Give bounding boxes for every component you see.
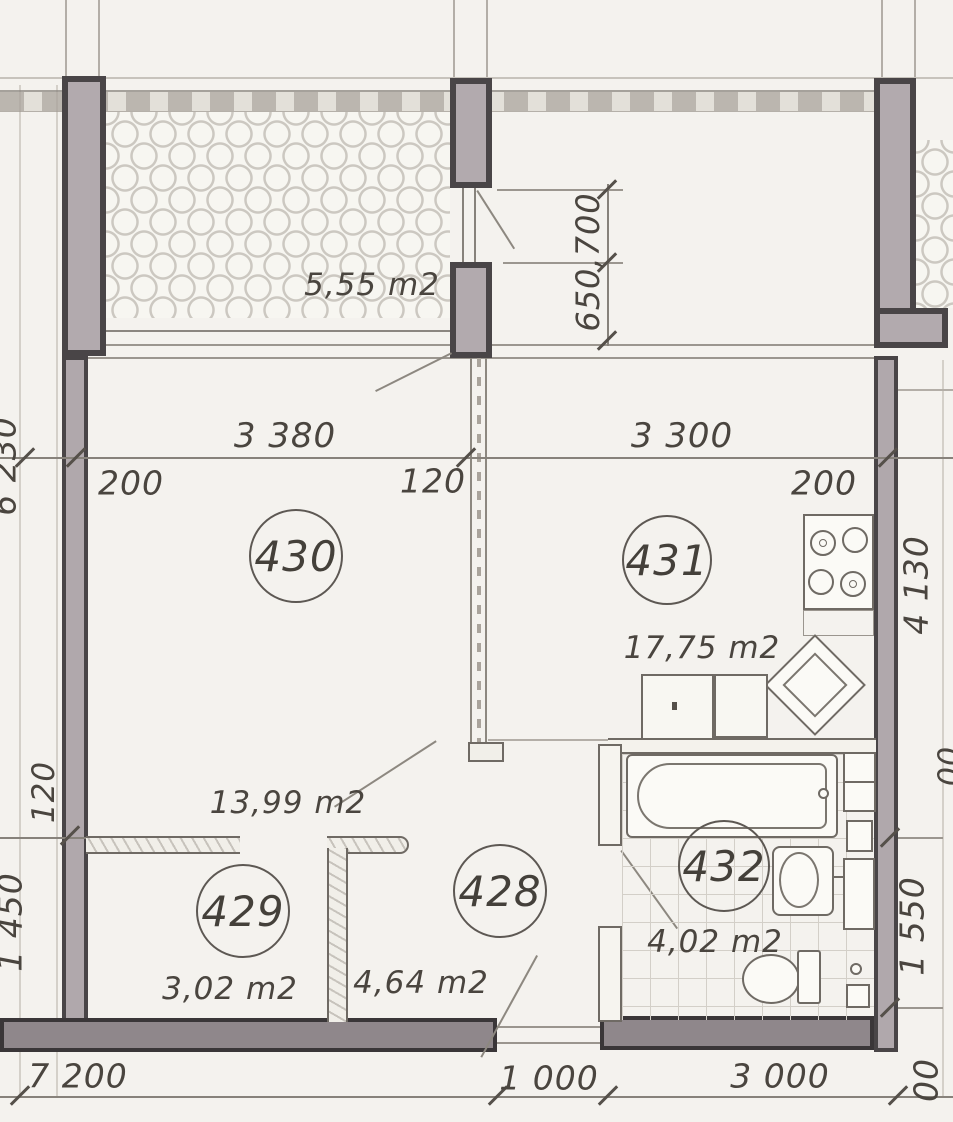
balcony-edge-line	[106, 330, 450, 332]
dim-bottom-left-total: 7 200	[28, 1057, 127, 1096]
dim-room-right-width: 3 300	[631, 416, 733, 456]
door-threshold-line	[497, 1042, 600, 1044]
dimension-ext	[898, 837, 943, 839]
door-threshold-line	[497, 1026, 600, 1028]
bathroom-top-wall	[608, 738, 876, 754]
dimension-line-window	[607, 184, 609, 346]
dim-left-lower: 1 450	[0, 872, 30, 971]
room-number: 431	[625, 536, 708, 585]
bath-fixture-valve-icon	[850, 963, 862, 975]
balcony-area-label: 5,55 m2	[304, 267, 440, 303]
dimension-ext	[898, 1007, 943, 1009]
grid-line	[65, 0, 67, 80]
stove-burner-dot	[819, 539, 827, 547]
room-number: 428	[458, 867, 541, 916]
dim-right-lower: 1 550	[893, 876, 932, 975]
pier-left	[62, 76, 106, 356]
dim-left-upper-partial: 6 230	[0, 416, 24, 515]
partition-430-429	[86, 836, 240, 854]
dim-wall-left: 200	[98, 464, 164, 503]
dim-bottom-door: 1 000	[499, 1059, 598, 1098]
bathroom-left-wall-lower	[598, 926, 622, 1022]
pier-right-foot	[874, 308, 948, 348]
stove-burner-icon	[842, 527, 868, 553]
bath-fixture	[843, 858, 875, 930]
room-number: 432	[682, 842, 765, 891]
dim-bottom-edge-partial: 00	[907, 1058, 946, 1102]
pier-mid-lower	[450, 262, 492, 358]
bath-fixture	[846, 984, 870, 1008]
dim-partition-mid: 120	[400, 462, 466, 501]
room-number: 429	[201, 887, 284, 936]
sink-bowl-icon	[779, 852, 819, 908]
stove-burner-dot	[849, 580, 857, 588]
room-432-area-label: 4,02 m2	[647, 924, 783, 960]
room-tag-432: 432	[678, 820, 770, 912]
bath-fixture-divider	[845, 781, 874, 783]
grid-line	[98, 0, 100, 80]
stove-icon	[803, 514, 874, 610]
extension-line	[942, 360, 944, 1098]
room-number: 430	[254, 532, 337, 581]
stove-burner-icon	[808, 569, 834, 595]
wardrobe-handle-dot	[672, 702, 677, 710]
grid-line	[914, 0, 916, 80]
partition-429-428	[327, 848, 348, 1022]
dim-left-partition: 120	[26, 761, 62, 823]
bathroom-left-wall-upper	[598, 744, 622, 846]
dimension-ext	[898, 389, 953, 391]
dim-bottom-bath: 3 000	[730, 1057, 829, 1096]
window-line	[462, 188, 464, 262]
dimension-line-bottom	[0, 1096, 953, 1098]
grid-line	[486, 0, 488, 80]
room-431-area-label: 17,75 m2	[624, 630, 781, 666]
toilet-bowl-icon	[742, 954, 800, 1004]
dimension-line-left	[0, 837, 86, 839]
kitchen-counter	[803, 610, 874, 636]
wall-bottom-right	[600, 1016, 874, 1050]
window-line	[474, 188, 476, 262]
wall-bottom-left	[0, 1018, 497, 1052]
window-opening-line	[476, 190, 515, 249]
bath-fixture	[846, 820, 873, 852]
room-tag-431: 431	[622, 515, 712, 605]
dim-right-mid-partial: 00	[933, 746, 953, 786]
dim-room-left-width: 3 380	[234, 416, 336, 456]
floor-plan: 430 431 429 428 432 5,55 m2 13,99 m2 17,…	[0, 0, 953, 1122]
grid-line	[881, 0, 883, 80]
wardrobe-icon	[714, 674, 768, 738]
dim-wall-right: 200	[791, 464, 857, 503]
partition-430-428	[470, 358, 487, 744]
dimension-line-main	[0, 457, 953, 459]
dim-window-stack: 650,700	[569, 192, 607, 331]
grid-line	[453, 0, 455, 80]
pier-mid-upper	[450, 78, 492, 188]
toilet-tank-icon	[797, 950, 821, 1004]
dim-right-upper: 4 130	[897, 535, 936, 634]
room-tag-428: 428	[453, 844, 547, 938]
extension-line	[56, 85, 58, 1097]
room-tag-429: 429	[196, 864, 290, 958]
room-tag-430: 430	[249, 509, 343, 603]
bathtub-faucet-icon	[818, 788, 829, 799]
wardrobe-icon	[641, 674, 714, 740]
bathtub-inner	[637, 763, 827, 829]
room-428-area-label: 4,64 m2	[353, 965, 489, 1001]
corridor-line	[488, 739, 608, 741]
partition-foot	[468, 742, 504, 762]
right-balcony-hatch	[916, 140, 953, 308]
room-429-area-label: 3,02 m2	[162, 971, 298, 1007]
room-430-area-label: 13,99 m2	[210, 785, 367, 821]
balcony-parapet	[0, 90, 876, 112]
